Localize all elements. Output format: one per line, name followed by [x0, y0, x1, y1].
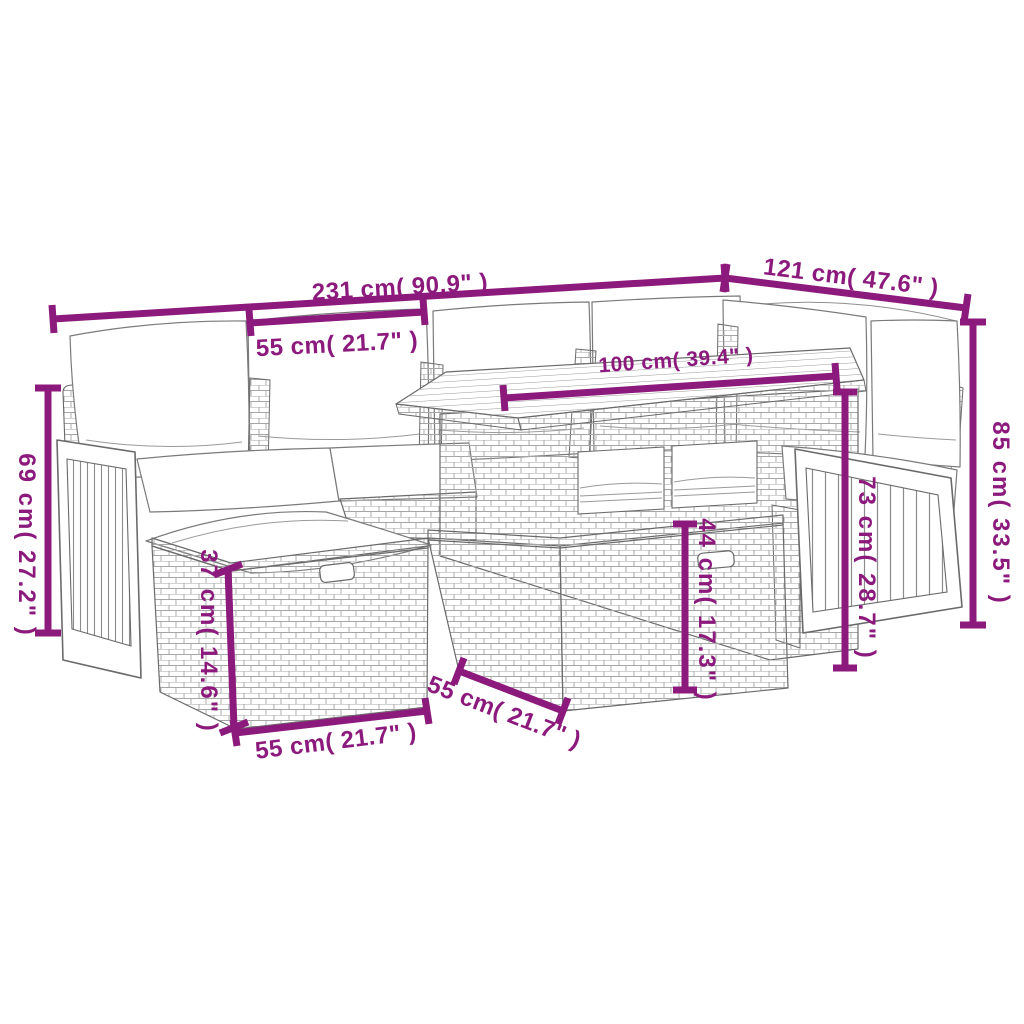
dimension-label-table-height: 73 cm( 28.7" )	[852, 476, 880, 659]
dimension-label-backrest-height-left: 69 cm( 27.2" )	[12, 453, 40, 636]
dimension-label-backrest-height-right: 85 cm( 33.5" )	[986, 421, 1014, 604]
dim-line-backrest-height-right	[960, 322, 986, 625]
left-ottoman	[146, 512, 431, 729]
pillow	[871, 320, 960, 467]
left-armrest-panel	[57, 440, 141, 678]
product-dimension-image: 231 cm( 90.9" ) 121 cm( 47.6" ) 55 cm( 2…	[0, 0, 1024, 1024]
dimension-label-ottoman-height: 37 cm( 14.6" )	[194, 549, 222, 732]
dimension-label-front-seat-height: 44 cm( 17.3" )	[692, 518, 720, 701]
